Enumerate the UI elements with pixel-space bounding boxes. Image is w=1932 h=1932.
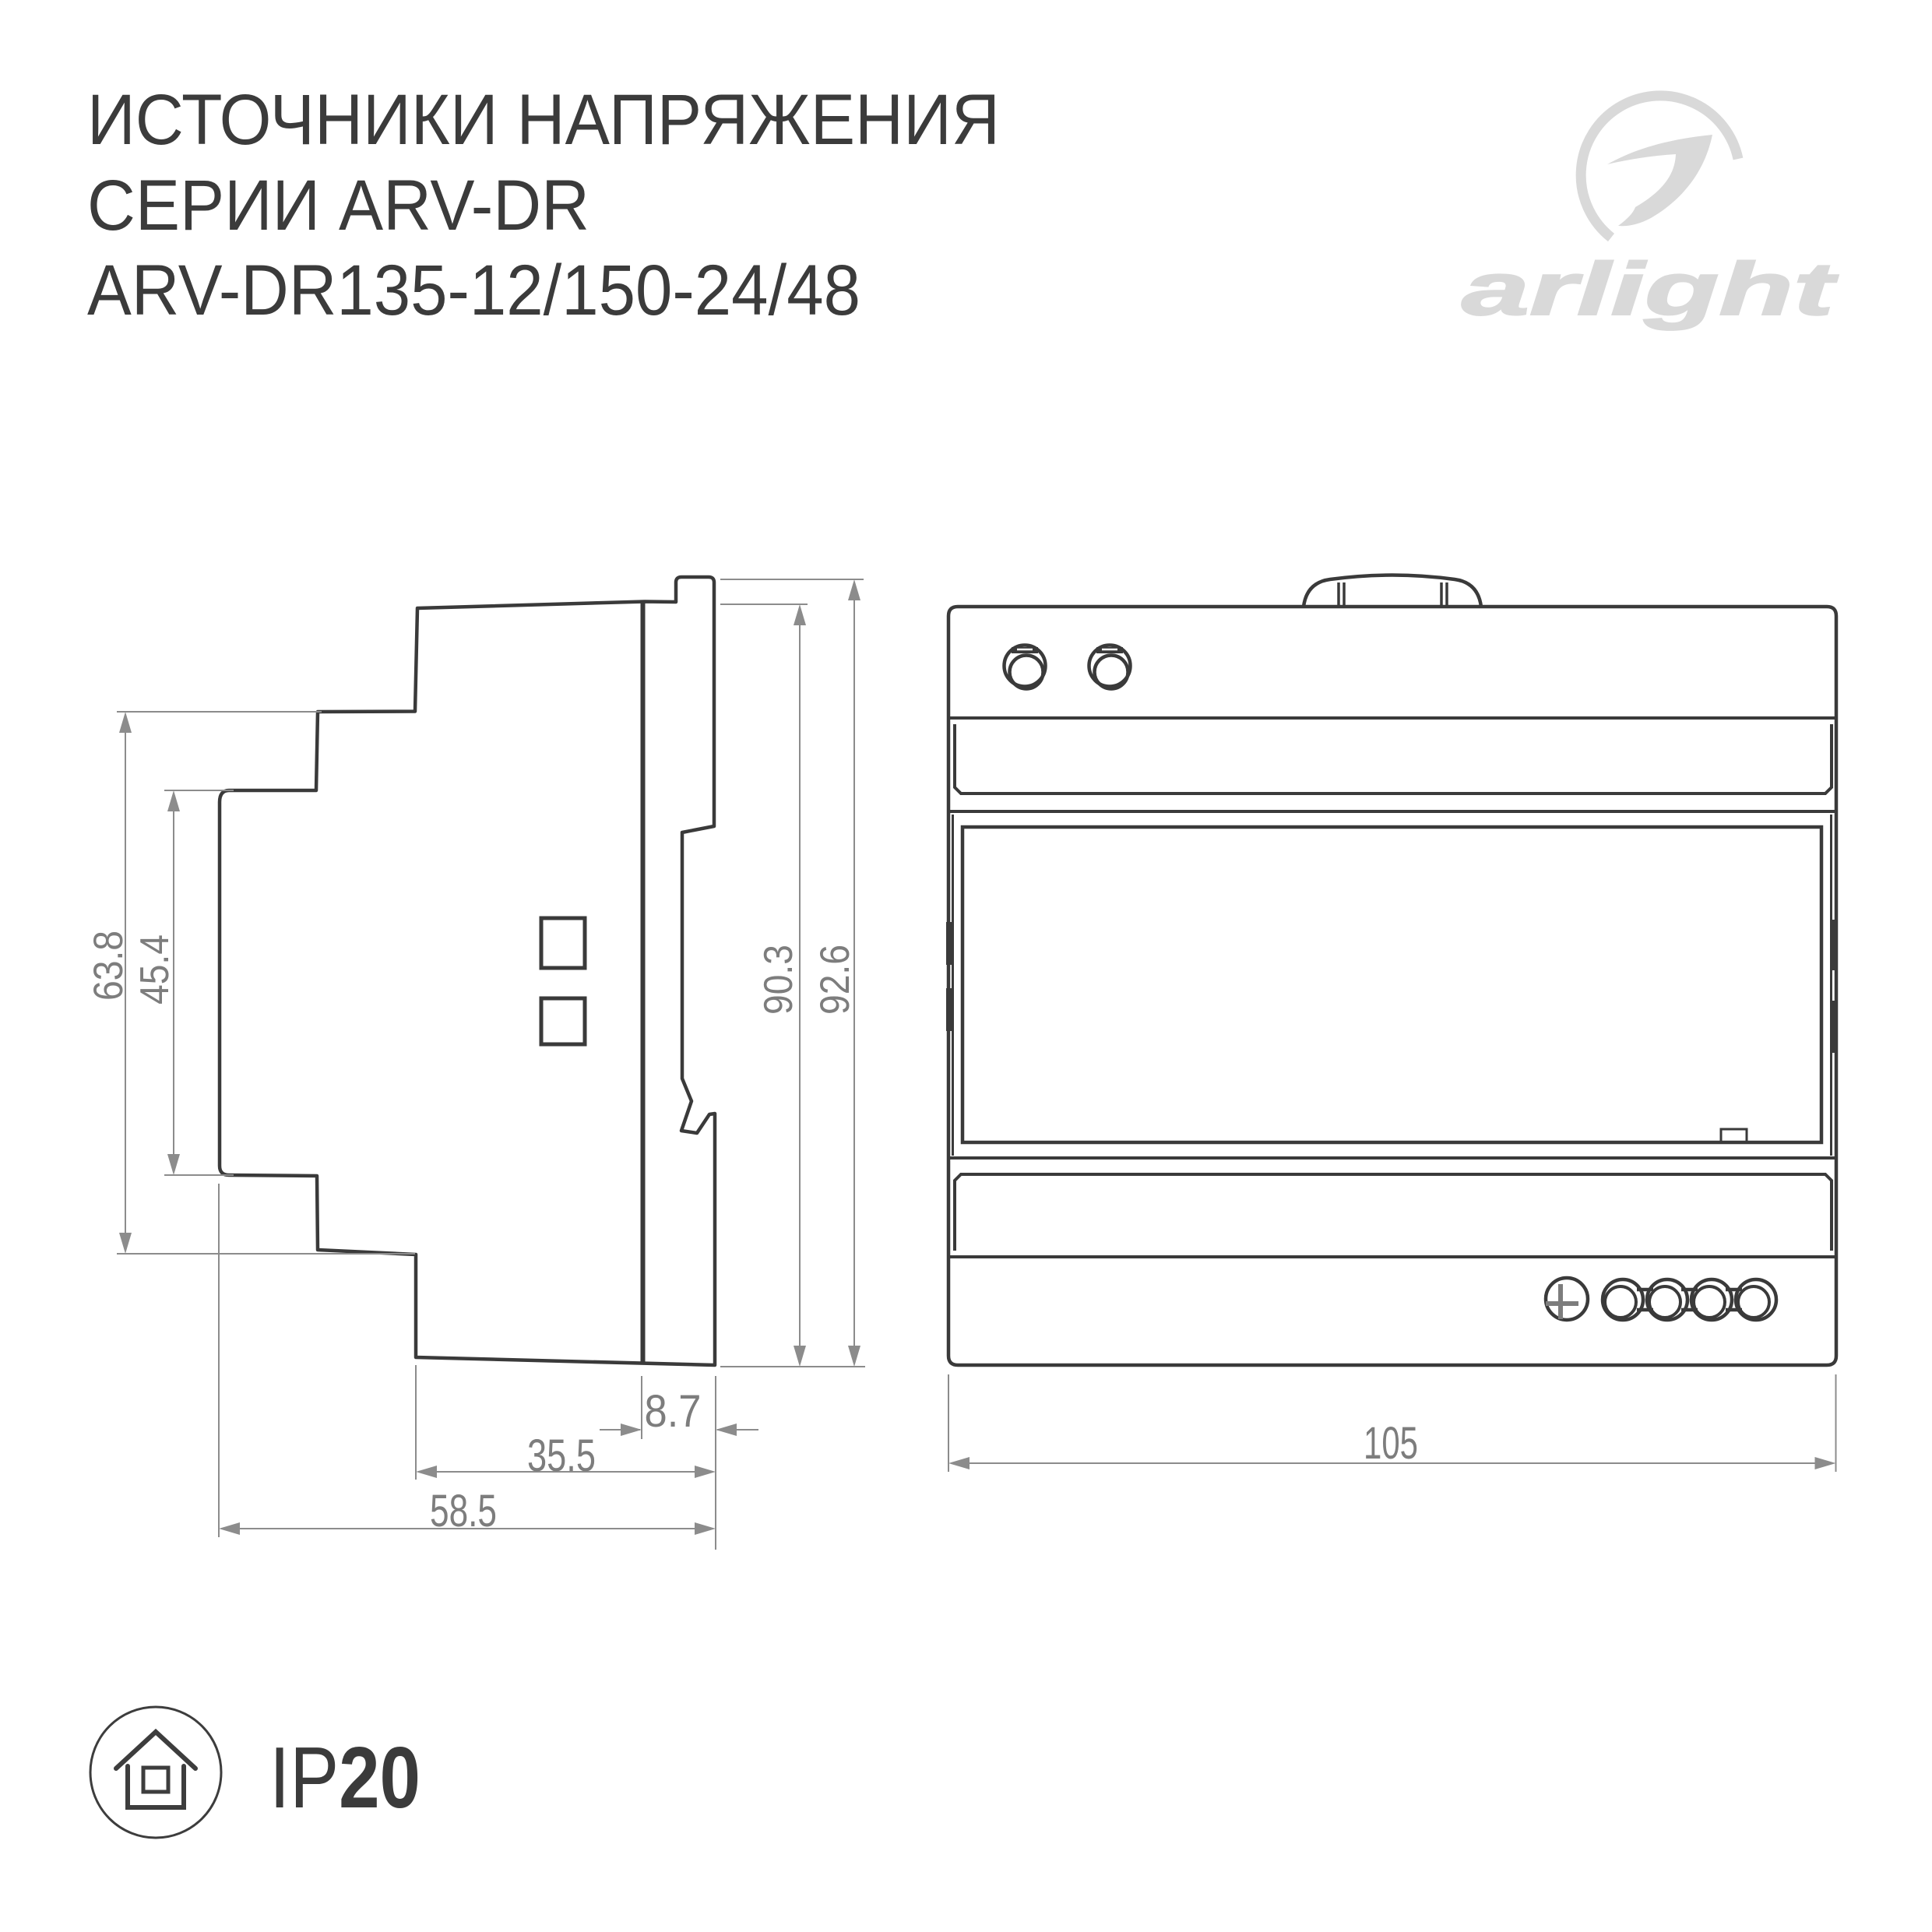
svg-text:90.3: 90.3 [756,945,801,1015]
svg-text:45.4: 45.4 [132,934,178,1005]
svg-text:105: 105 [1364,1418,1418,1469]
svg-text:ARV-DR135-12/150-24/48: ARV-DR135-12/150-24/48 [87,251,860,330]
svg-text:arlight: arlight [1462,248,1839,331]
svg-text:IP20: IP20 [269,1730,421,1826]
svg-text:92.6: 92.6 [812,945,858,1015]
svg-text:63.8: 63.8 [86,931,132,1001]
svg-text:35.5: 35.5 [527,1431,596,1481]
svg-text:ИСТОЧНИКИ НАПРЯЖЕНИЯ: ИСТОЧНИКИ НАПРЯЖЕНИЯ [87,80,1000,160]
svg-text:58.5: 58.5 [430,1486,497,1536]
svg-text:8.7: 8.7 [645,1386,702,1437]
svg-text:СЕРИИ ARV-DR: СЕРИИ ARV-DR [87,166,589,245]
